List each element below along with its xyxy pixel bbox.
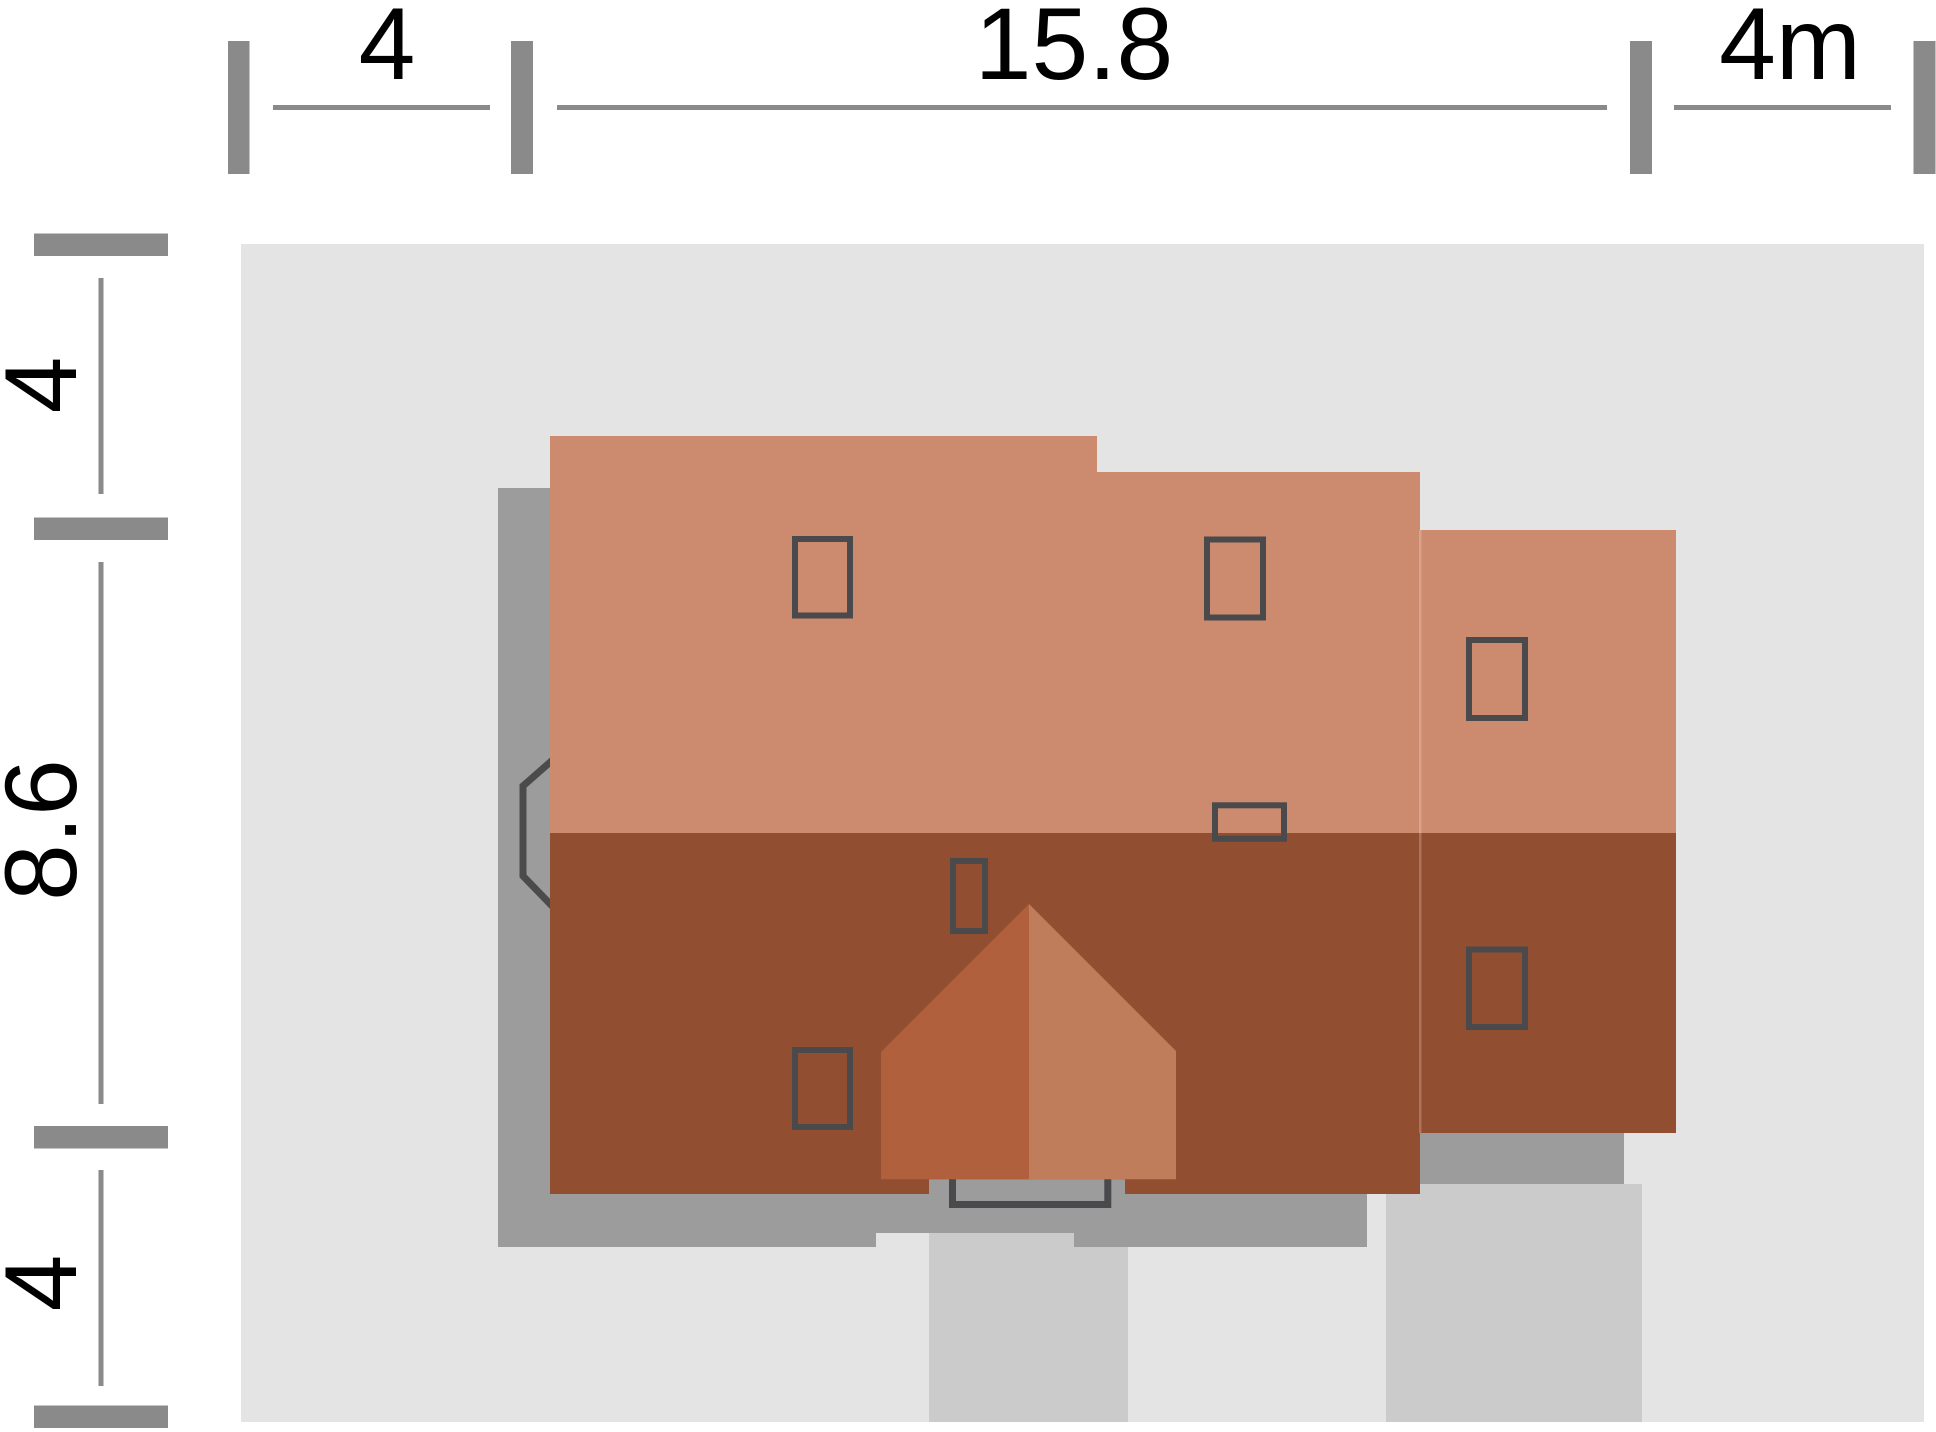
svg-text:8.6: 8.6 [0, 759, 98, 901]
svg-text:4m: 4m [1719, 0, 1861, 101]
svg-text:4: 4 [0, 357, 98, 414]
svg-text:15.8: 15.8 [975, 0, 1174, 101]
svg-text:4: 4 [0, 1255, 98, 1312]
svg-text:4: 4 [359, 0, 416, 101]
